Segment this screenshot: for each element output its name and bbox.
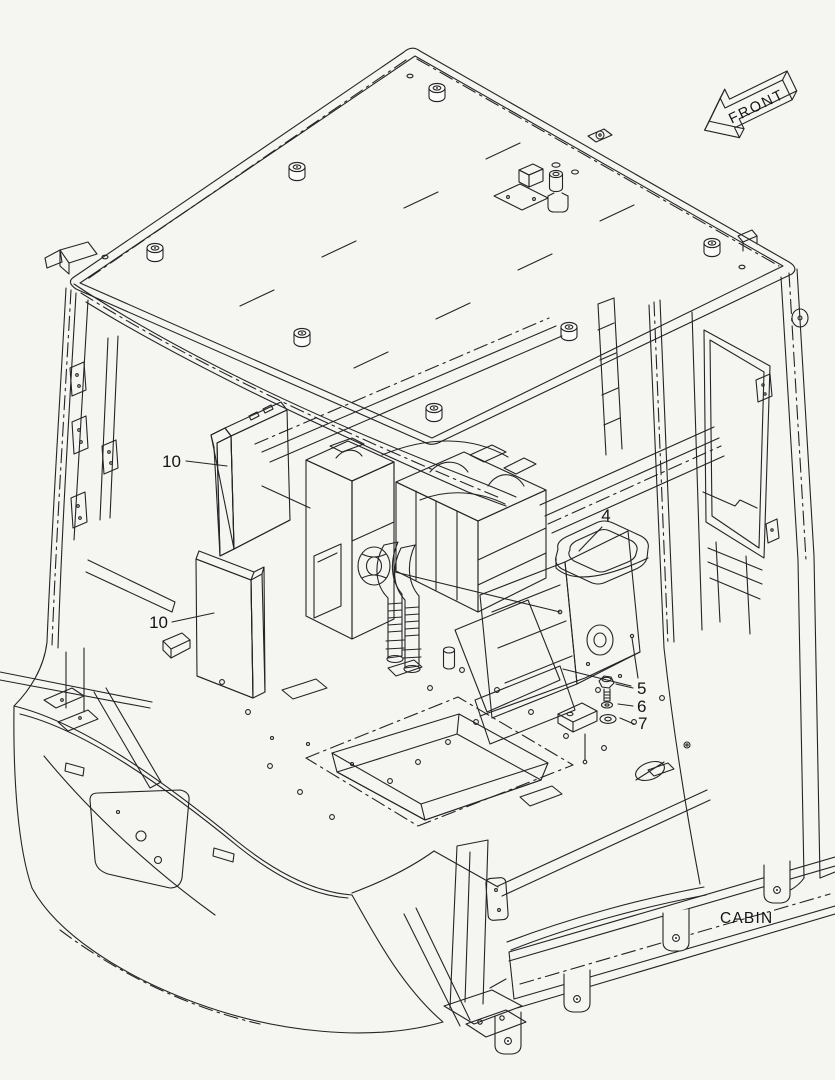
cab-floor: [0, 648, 710, 896]
callout-plain-washer: 7: [638, 714, 647, 733]
callout-bolt: 5: [637, 679, 646, 698]
panel-slot: [65, 763, 84, 776]
callout-filter-upper: 10: [162, 452, 181, 471]
plain-washer: [600, 715, 616, 724]
front-panel-outline: [14, 706, 443, 1033]
mounting-foot: [495, 1012, 521, 1054]
door-hinge-plate: [486, 877, 509, 920]
roof-mount: [147, 243, 163, 261]
roof-outline: [70, 48, 794, 444]
mounting-foot: [564, 970, 590, 1012]
mounting-foot: [764, 861, 790, 903]
leader-line: [563, 638, 638, 688]
blower-fan-icon: [358, 547, 390, 585]
right-wall: [495, 269, 835, 1054]
spring-washer: [602, 702, 613, 708]
floor-recess: [306, 697, 573, 826]
hinge-plate: [71, 492, 87, 528]
roof-holes: [102, 74, 745, 269]
roof-plate: [588, 129, 612, 142]
roof-mount: [429, 83, 445, 101]
mounting-foot: [663, 909, 689, 951]
hvac-blower-module: [444, 531, 641, 744]
roof-corner-bracket: [45, 242, 97, 274]
roof-mount: [704, 238, 720, 256]
panel-cutout: [90, 790, 189, 888]
front-header-curve: [74, 284, 516, 497]
leader-line: [618, 704, 633, 706]
roof-mount: [294, 328, 310, 346]
roof-mount: [426, 403, 442, 421]
center-support-column: [404, 840, 526, 1037]
rear-window-frame: [703, 330, 770, 558]
callouts: 10 10 4 5 6 7: [149, 452, 647, 733]
callout-duct: 4: [601, 506, 610, 525]
leader-line: [579, 527, 602, 551]
rear-wall-duct: [598, 298, 622, 455]
air-filter-upper: [211, 402, 290, 556]
pillar-bracket: [102, 440, 118, 474]
panel-slot: [213, 848, 234, 862]
fastener-set: [558, 676, 616, 764]
parts-diagram-page: 10 10 4 5 6 7 FRONT CABIN: [0, 0, 835, 1080]
mounting-bracket: [558, 703, 597, 764]
hvac-left-housing: [306, 438, 394, 639]
duct-outlet: [556, 521, 649, 584]
roof-mount: [561, 322, 577, 340]
air-filter-lower: [196, 551, 265, 698]
drain-hoses: [377, 542, 421, 673]
roof-bracket-cluster: [494, 163, 568, 212]
wall-clip: [766, 519, 779, 543]
floor-bolt-holes: [220, 663, 665, 820]
leader-line: [186, 461, 227, 466]
front-panel: [14, 706, 443, 1033]
callout-filter-lower: 10: [149, 613, 168, 632]
roof-mount: [289, 162, 305, 180]
leader-line: [172, 613, 214, 622]
cabin-label: CABIN: [720, 910, 773, 927]
filter-mount-clip: [163, 633, 190, 658]
front-arrow: FRONT: [692, 61, 804, 150]
parts-diagram-canvas: 10 10 4 5 6 7 FRONT CABIN: [0, 0, 835, 1080]
